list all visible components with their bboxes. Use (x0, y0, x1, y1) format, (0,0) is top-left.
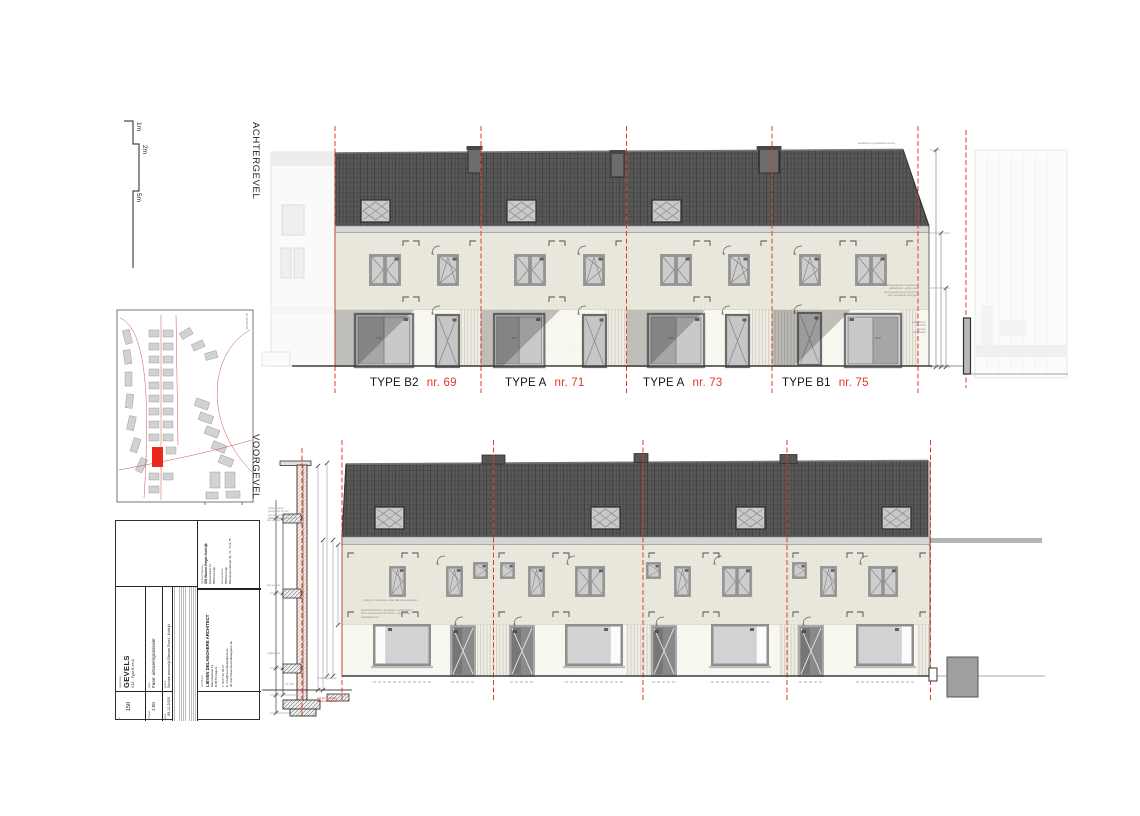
map-location-marker (152, 447, 163, 467)
window-icon (528, 566, 545, 597)
number-label: nr. (117, 693, 121, 720)
window-icon (575, 566, 605, 597)
window-icon (728, 254, 750, 286)
window-icon (854, 624, 916, 668)
window-icon (563, 624, 625, 668)
unit-type: TYPE A (505, 377, 546, 389)
title-block-number-cell: nr. 150 (116, 691, 146, 721)
window-icon (473, 562, 488, 579)
unit-number: nr. 73 (692, 377, 722, 389)
rear-roof-note: aansluiten op bestaande woning (858, 142, 920, 145)
rear-neighbour-right (975, 150, 1067, 378)
roof-window-icon (736, 507, 765, 529)
chimney-icon (610, 150, 626, 177)
front-door-icon (652, 626, 676, 676)
site-plan-map (117, 310, 253, 505)
drawing-subtitle: V12 - Type B en A (131, 590, 135, 688)
rear-elevation-title: ACHTERGEVEL (250, 122, 261, 199)
title-block-project-cell: project: Sociale woonwijk Blauwe Poort -… (163, 586, 173, 691)
front-note-b: gevelmetselwerk in gevelsteen, wildverba… (361, 609, 441, 619)
roof-window-icon (375, 507, 404, 529)
front-door-icon (510, 626, 534, 676)
drawing-title: GEVELS (122, 590, 131, 688)
door-icon (436, 315, 459, 367)
architect-label: architect: (200, 594, 204, 687)
rear-wall-note: gevelmetselwerk in gevelsteen wildverban… (828, 284, 918, 297)
map-figure-label: fig. 09-A4-B2 (245, 313, 249, 329)
roof-window-icon (591, 507, 620, 529)
door-icon (583, 315, 606, 367)
title-block-revisions (173, 586, 197, 721)
window-icon (646, 562, 661, 579)
rear-neighbour-left (262, 152, 335, 366)
site-line-2: Blauwepoortstraat 69, 71, 73 & 75 (228, 525, 232, 584)
window-icon (709, 624, 771, 668)
door-icon (726, 315, 749, 367)
rear-gutter (335, 226, 929, 233)
unit-type: TYPE B2 (370, 377, 419, 389)
scale-value: 1:50 (151, 693, 156, 720)
project-name: Sociale woonwijk Blauwe Poort - Kortrijk (167, 590, 171, 688)
unit-type: TYPE B1 (782, 377, 831, 389)
title-block-architect-cell: architect: LIEVEN DELAEGHERE ARCHITECT M… (197, 589, 261, 691)
architectural-drawing-sheet: { "sheet": {"bg": "#ffffff"}, "colors": … (0, 0, 1140, 816)
window-icon (799, 254, 821, 286)
roof-window-icon (361, 200, 390, 222)
dimension-lines (327, 463, 338, 676)
unit-type: TYPE A (643, 377, 684, 389)
boundary-post (964, 318, 971, 374)
chimney-icon (757, 146, 782, 173)
scale-label-1m: 1m (135, 122, 142, 131)
date-value: 09.12.2020 (167, 693, 171, 721)
wall-section-detail (262, 448, 352, 718)
window-icon (722, 566, 752, 597)
unit-label-71: TYPE Anr. 71 (505, 377, 584, 389)
title-block-drawing-cell: tekening: GEVELS V12 - Type B en A (116, 586, 146, 691)
unit-number: nr. 75 (839, 377, 869, 389)
title-block-spare-cell (197, 691, 261, 721)
front-door-icon (799, 626, 823, 676)
window-icon (514, 254, 546, 286)
client-address-2: 8500 Kortrijk (212, 525, 216, 584)
garden-wall (930, 538, 1042, 543)
architect-website: W. http://www.lievendelaeghere.be (229, 594, 233, 687)
roof-window-icon (882, 507, 911, 529)
roof-window-icon (652, 200, 681, 222)
front-note-a: dorpels in aluminium onder alle raamopen… (363, 599, 433, 602)
title-block-date-cell: datum: 09.12.2020 (163, 691, 173, 721)
section-red-note: pas op te metsen vanaf niveau werf (317, 697, 351, 704)
front-gutter (342, 537, 930, 545)
window-icon (389, 566, 406, 597)
window-icon (855, 254, 887, 286)
title-block-client-cell: opdrachtgever: SM Wonen Regio Kortrijk N… (197, 521, 261, 589)
section-foot-note: funderingsaanzet (318, 677, 336, 680)
front-elevation (262, 440, 1045, 718)
sliding-door-icon (845, 314, 901, 367)
window-icon (660, 254, 692, 286)
plan-number: 150 (126, 693, 132, 720)
rear-elevation (262, 126, 1068, 393)
section-level-zero: niv. 0.00 (285, 683, 294, 686)
window-icon (371, 624, 433, 668)
window-icon (446, 566, 463, 597)
rear-cladding-note: bekleding in verticale houten planchette… (896, 321, 926, 334)
chimney-icon (780, 455, 797, 464)
title-block: nr. 150 tekening: GEVELS V12 - Type B en… (115, 520, 260, 720)
front-door-icon (451, 626, 475, 676)
chimney-icon (467, 146, 483, 173)
window-icon (674, 566, 691, 597)
front-roof (342, 461, 928, 538)
unit-number: nr. 69 (427, 377, 457, 389)
roof-window-icon (507, 200, 536, 222)
title-block-phase-cell: fase: Fase: uitvoeringsdossier (146, 586, 163, 691)
title-block-scale-cell: schaal: 1:50 (146, 691, 163, 721)
unit-label-69: TYPE B2nr. 69 (370, 377, 457, 389)
window-icon (868, 566, 898, 597)
rear-roof (335, 150, 929, 227)
boundary-post (929, 668, 937, 681)
dimension-lines (930, 150, 950, 367)
scale-label-5m: 5m (135, 193, 142, 202)
window-icon (583, 254, 605, 286)
chimney-icon (634, 454, 648, 463)
phase-value: Fase: uitvoeringsdossier (151, 590, 156, 688)
window-icon (437, 254, 459, 286)
window-icon (792, 562, 807, 579)
map-scale-ticks (205, 502, 242, 505)
title-block-empty-cell (116, 521, 197, 586)
garden-shed (947, 657, 978, 697)
unit-label-75: TYPE B1nr. 75 (782, 377, 869, 389)
unit-label-73: TYPE Anr. 73 (643, 377, 722, 389)
architect-address-2: B-8870 Izegem (214, 594, 218, 687)
window-icon (369, 254, 401, 286)
unit-number: nr. 71 (554, 377, 584, 389)
window-icon (500, 562, 515, 579)
front-elevation-title: VOORGEVEL (250, 434, 261, 499)
scale-label-2m: 2m (141, 145, 148, 154)
window-icon (820, 566, 837, 597)
